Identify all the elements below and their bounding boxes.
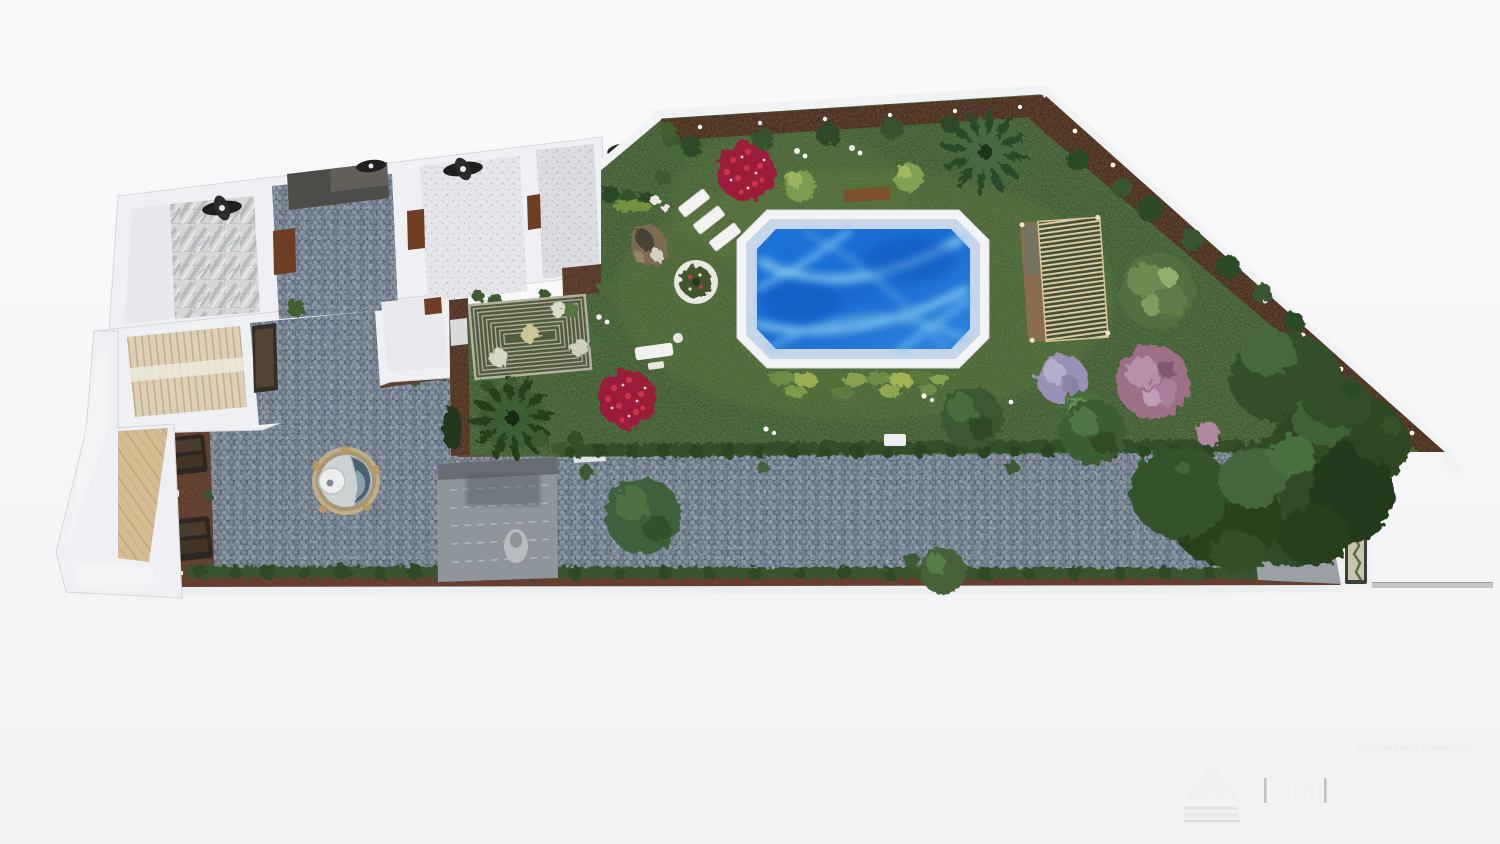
svg-text:HOMESTYLER: HOMESTYLER bbox=[1247, 777, 1455, 807]
svg-text:Designed with Homestyler: Designed with Homestyler bbox=[1356, 743, 1473, 754]
